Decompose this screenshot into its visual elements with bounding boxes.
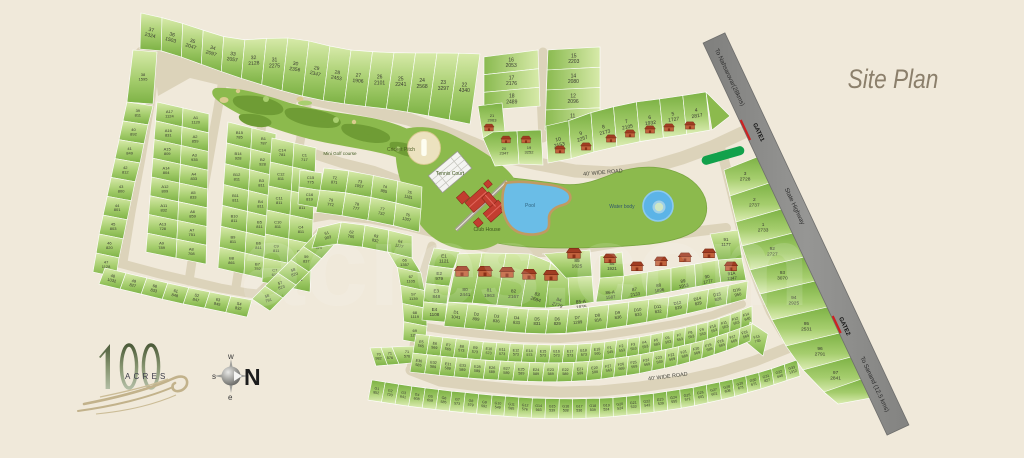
svg-text:811: 811: [278, 176, 285, 181]
svg-text:775: 775: [307, 179, 314, 184]
svg-text:538: 538: [563, 409, 569, 413]
svg-text:585: 585: [508, 406, 514, 410]
svg-text:589: 589: [430, 365, 437, 370]
svg-text:573: 573: [540, 354, 546, 358]
svg-text:861: 861: [228, 260, 235, 265]
svg-text:811: 811: [231, 218, 238, 223]
svg-text:1906: 1906: [352, 78, 364, 85]
svg-text:573: 573: [472, 350, 479, 355]
svg-text:803: 803: [110, 226, 117, 231]
svg-text:589: 589: [489, 370, 495, 374]
svg-text:97: 97: [833, 370, 839, 376]
svg-text:s: s: [212, 372, 216, 381]
svg-text:811: 811: [258, 182, 265, 187]
svg-text:w: w: [227, 352, 234, 361]
svg-text:811: 811: [230, 239, 237, 244]
svg-text:809: 809: [162, 189, 169, 194]
svg-text:2128: 2128: [248, 60, 260, 67]
svg-text:787: 787: [260, 141, 267, 146]
svg-text:Cricket Pitch: Cricket Pitch: [387, 147, 415, 153]
svg-text:589: 589: [459, 368, 465, 373]
svg-text:589: 589: [533, 372, 539, 376]
svg-text:524: 524: [603, 407, 609, 411]
svg-text:Site Plan: Site Plan: [848, 64, 939, 94]
svg-text:563: 563: [536, 408, 542, 412]
svg-text:539: 539: [549, 408, 555, 412]
svg-text:573: 573: [499, 352, 505, 356]
svg-text:539: 539: [590, 408, 596, 412]
svg-text:728: 728: [159, 226, 166, 231]
svg-text:809: 809: [164, 151, 171, 156]
svg-text:545: 545: [607, 350, 614, 355]
svg-text:659: 659: [427, 398, 433, 403]
svg-text:96: 96: [817, 346, 823, 352]
svg-text:892: 892: [130, 132, 137, 137]
svg-text:3: 3: [744, 171, 747, 177]
svg-text:573: 573: [458, 348, 465, 353]
svg-text:811: 811: [234, 176, 241, 181]
svg-text:573: 573: [567, 353, 573, 357]
svg-text:804: 804: [163, 170, 170, 175]
svg-text:553: 553: [630, 346, 637, 351]
svg-text:589: 589: [503, 371, 509, 375]
svg-text:811: 811: [232, 197, 239, 202]
svg-text:585: 585: [440, 400, 446, 405]
svg-text:800: 800: [118, 188, 125, 193]
svg-text:589: 589: [562, 372, 568, 376]
svg-text:569: 569: [431, 345, 438, 350]
svg-text:565: 565: [594, 351, 601, 356]
svg-text:e: e: [228, 393, 233, 402]
svg-text:589: 589: [444, 366, 451, 371]
svg-text:576: 576: [404, 354, 410, 358]
svg-text:819: 819: [306, 197, 313, 202]
svg-text:579: 579: [467, 403, 473, 408]
svg-text:N: N: [244, 364, 261, 390]
svg-text:549: 549: [495, 405, 501, 409]
svg-text:1120: 1120: [191, 120, 200, 125]
svg-text:801: 801: [114, 207, 121, 212]
svg-text:2096: 2096: [568, 99, 579, 105]
svg-text:573: 573: [454, 401, 460, 406]
svg-text:2176: 2176: [506, 81, 517, 87]
svg-text:576: 576: [522, 407, 528, 411]
svg-text:2101: 2101: [374, 80, 385, 86]
svg-text:708: 708: [188, 251, 195, 256]
svg-text:2080: 2080: [568, 79, 579, 85]
svg-text:589: 589: [548, 372, 554, 376]
svg-text:573: 573: [581, 352, 587, 356]
svg-text:982: 982: [375, 357, 381, 361]
svg-text:2841: 2841: [830, 375, 841, 381]
svg-text:2063: 2063: [488, 118, 498, 123]
svg-text:2275: 2275: [269, 63, 280, 69]
svg-text:928: 928: [235, 156, 242, 161]
svg-text:Tennis Court: Tennis Court: [436, 171, 465, 177]
svg-text:812: 812: [122, 169, 129, 174]
svg-text:781: 781: [279, 152, 286, 157]
svg-text:928: 928: [259, 162, 266, 167]
svg-text:592: 592: [481, 404, 487, 409]
svg-text:2347: 2347: [500, 151, 510, 156]
svg-text:3297: 3297: [438, 86, 449, 92]
svg-text:565: 565: [418, 344, 425, 349]
svg-text:935: 935: [191, 157, 198, 162]
svg-text:573: 573: [485, 351, 491, 355]
svg-text:573: 573: [526, 353, 532, 357]
svg-text:576: 576: [387, 356, 393, 360]
svg-text:2791: 2791: [815, 351, 826, 357]
svg-text:3252: 3252: [525, 150, 535, 155]
svg-text:751: 751: [189, 232, 196, 237]
svg-text:849: 849: [126, 151, 133, 156]
svg-text:543: 543: [644, 403, 650, 408]
svg-text:589: 589: [474, 369, 480, 373]
svg-text:2728: 2728: [740, 176, 751, 182]
svg-text:833: 833: [190, 195, 197, 200]
svg-text:785: 785: [236, 135, 243, 140]
svg-text:573: 573: [513, 353, 519, 357]
svg-text:573: 573: [554, 354, 560, 358]
svg-text:833: 833: [190, 176, 197, 181]
svg-text:2241: 2241: [395, 82, 406, 88]
svg-text:859: 859: [189, 213, 196, 218]
svg-text:832: 832: [160, 207, 167, 212]
svg-text:811: 811: [135, 113, 142, 118]
svg-text:859: 859: [192, 138, 199, 143]
svg-text:4340: 4340: [459, 88, 470, 94]
svg-text:589: 589: [518, 372, 524, 376]
svg-text:533: 533: [631, 405, 637, 410]
svg-text:2053: 2053: [506, 63, 517, 69]
svg-text:717: 717: [301, 157, 308, 162]
svg-text:2489: 2489: [506, 99, 517, 105]
svg-text:536: 536: [576, 409, 582, 413]
svg-text:589: 589: [577, 371, 583, 375]
svg-text:1595: 1595: [139, 77, 149, 82]
svg-text:588: 588: [592, 370, 599, 375]
svg-text:789: 789: [158, 245, 165, 250]
svg-text:2203: 2203: [568, 59, 579, 65]
svg-text:820: 820: [106, 245, 113, 250]
svg-text:608: 608: [413, 397, 419, 402]
svg-text:Mini Golf course: Mini Golf course: [323, 151, 357, 156]
svg-text:acres.com: acres.com: [241, 202, 810, 330]
svg-text:2568: 2568: [417, 84, 428, 90]
svg-text:565: 565: [445, 347, 452, 352]
svg-text:524: 524: [617, 406, 623, 411]
svg-text:1124: 1124: [165, 114, 174, 119]
svg-text:ACRES: ACRES: [125, 372, 169, 381]
svg-text:585: 585: [415, 363, 422, 368]
svg-text:831: 831: [165, 132, 172, 137]
